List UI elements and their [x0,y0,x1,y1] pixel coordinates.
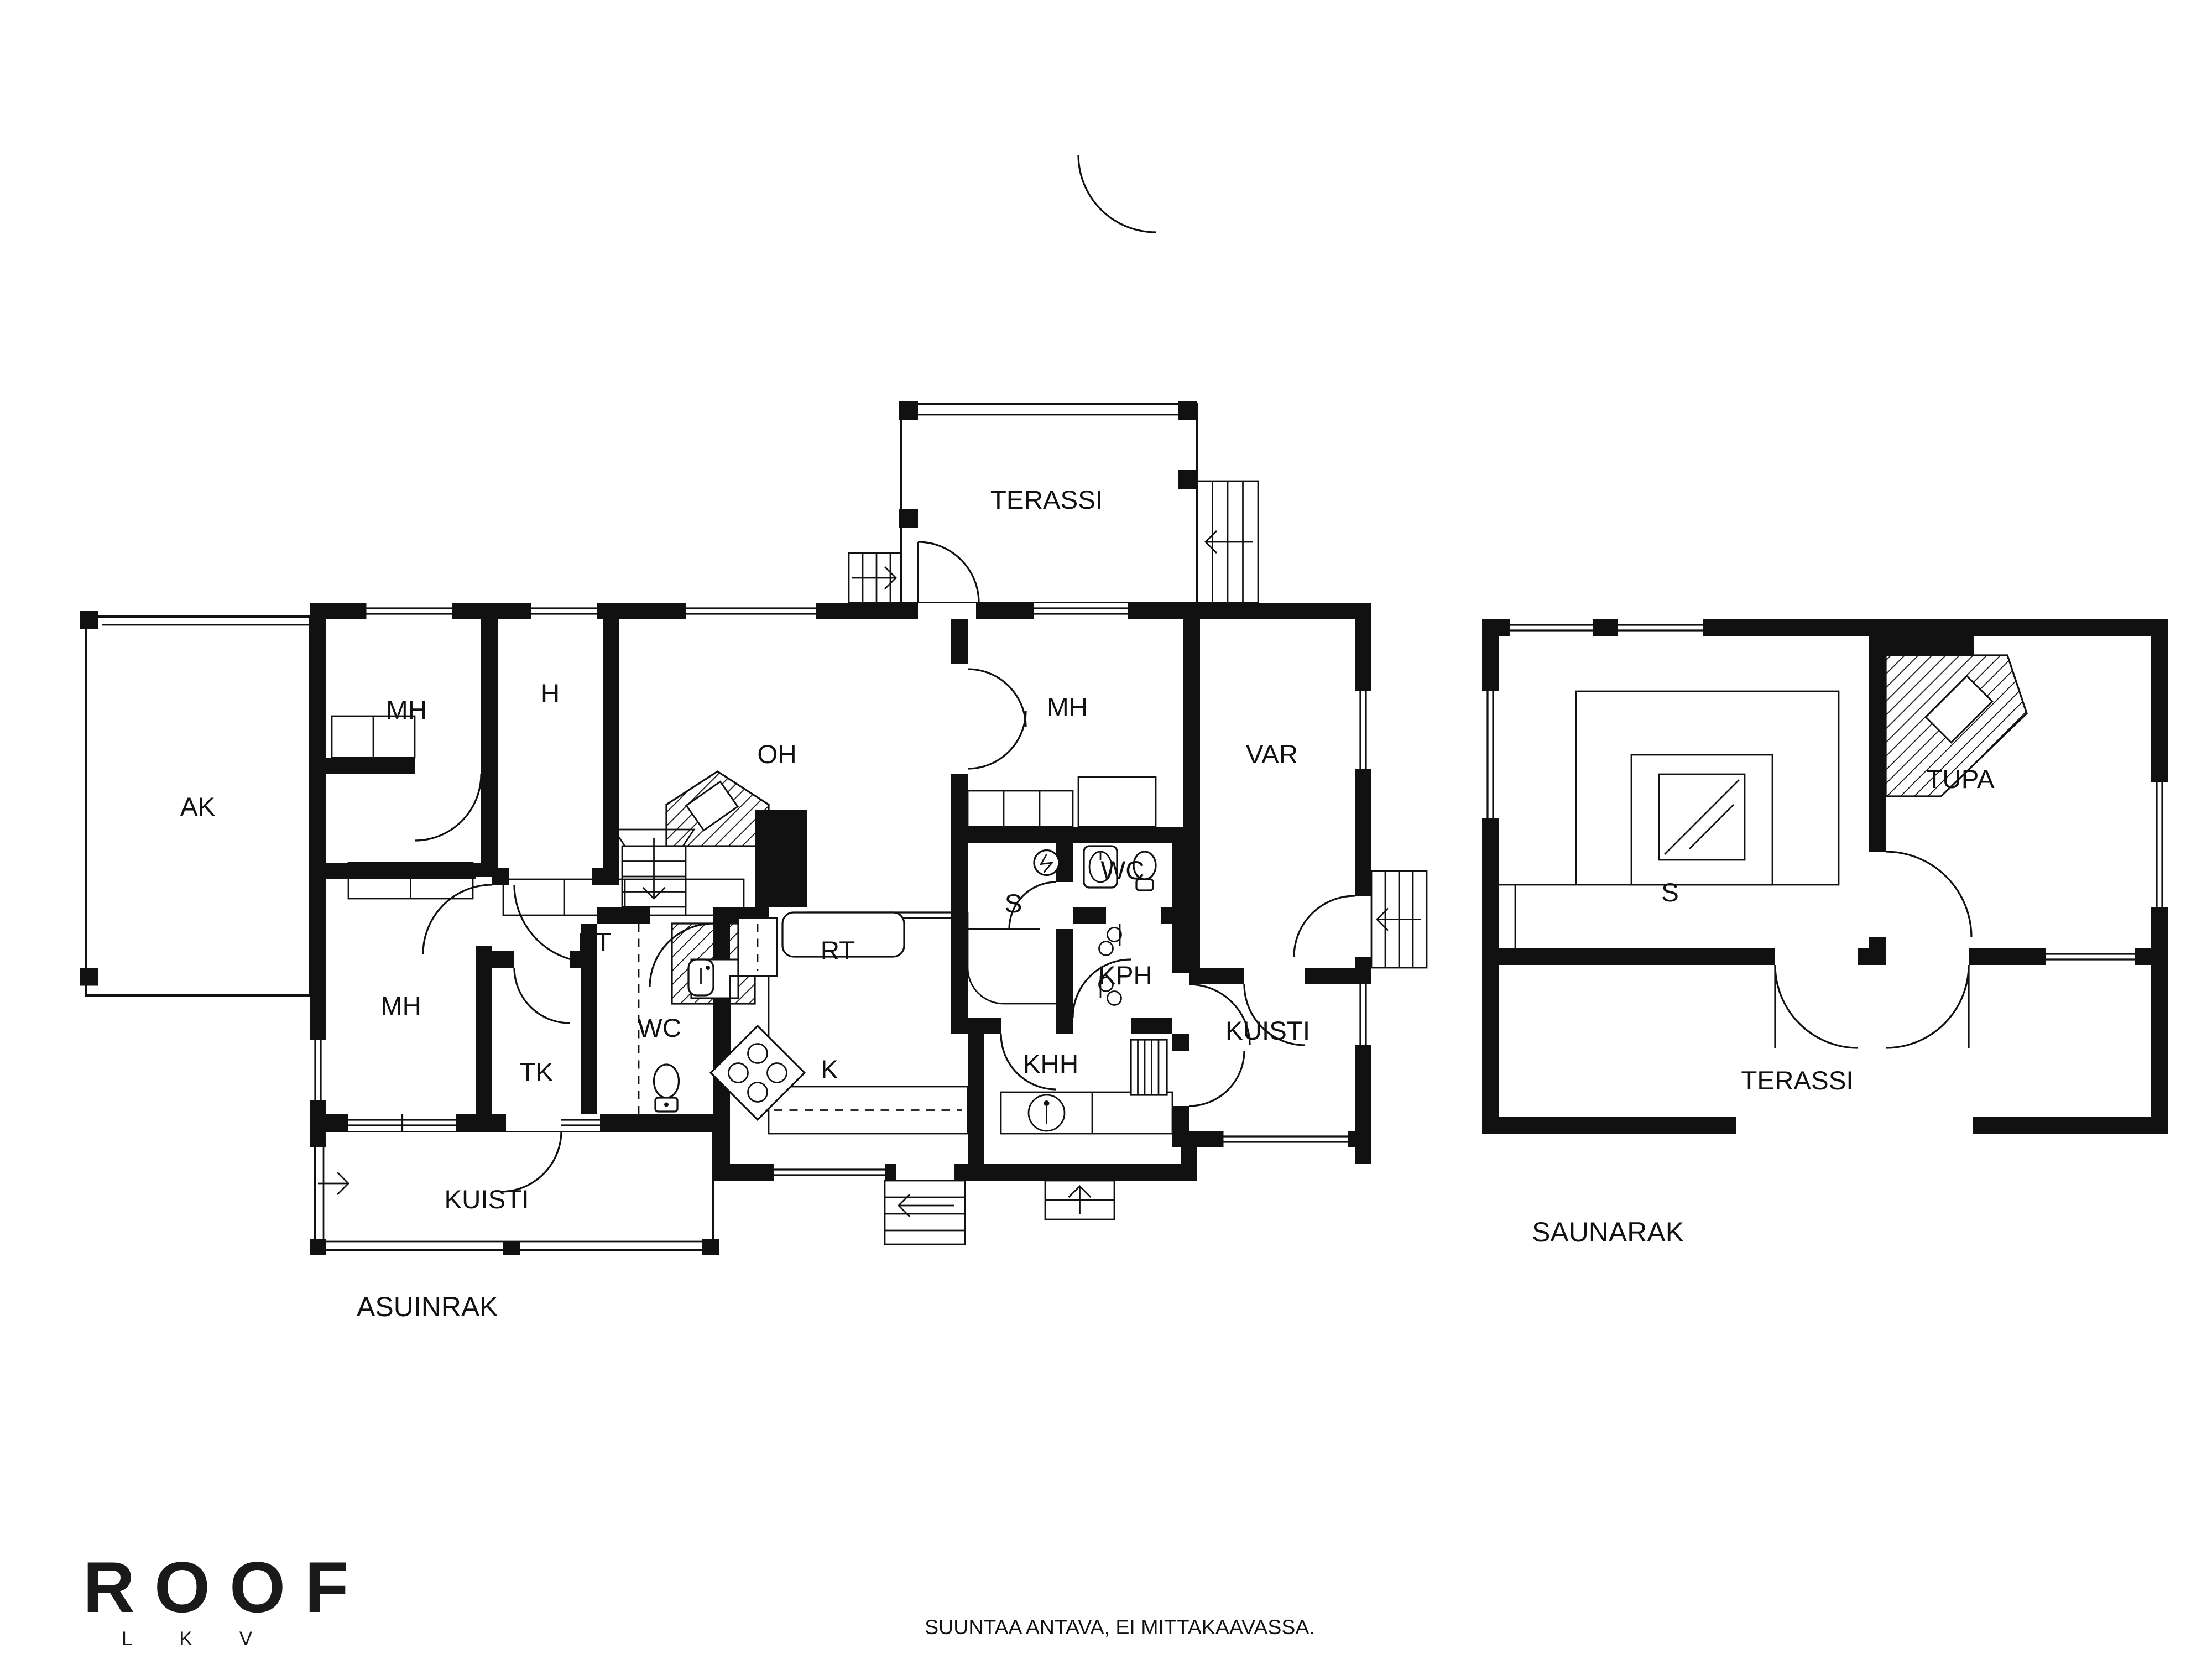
sauna-building: TUPA S TERASSI SAUNARAK [1482,619,2168,1248]
room-label-sauna-terassi: TERASSI [1741,1066,1853,1095]
room-label-tupa: TUPA [1926,765,1994,794]
room-label-kuisti-front: KUISTI [444,1185,529,1214]
window [1224,1131,1348,1147]
window [367,603,452,619]
stairs-kitchen [885,1181,965,1244]
room-label-tk: TK [520,1058,554,1087]
room-label-oh: OH [757,740,796,769]
room-label-k: K [821,1055,838,1084]
footer: ROOF LKV SUUNTAA ANTAVA, EI MITTAKAAVASS… [83,1547,1315,1650]
electric-panel-icon [1034,851,1059,875]
room-label-kph: KPH [1098,961,1152,990]
window [2151,782,2168,907]
window [774,1164,885,1181]
room-label-mh-bottom: MH [380,992,421,1021]
window [2046,948,2135,965]
sauna-windows [1482,619,2168,965]
room-label-mh-top-right: MH [1047,693,1088,722]
sauna-interior-walls [1482,636,2168,965]
main-building: TERASSI AK MH H OH MH VAR S WC KPH ET RT… [80,155,1427,1322]
washing-machine-icon [1029,1095,1065,1131]
window [1355,691,1371,769]
sauna-stove-icon [1659,774,1745,860]
room-label-rt: RT [821,936,855,966]
window [348,1114,456,1131]
sauna-outer-walls [1482,619,2168,1134]
brand-logo-letters: LKV [122,1628,299,1650]
room-label-s: S [1005,889,1022,919]
window [1355,984,1371,1045]
sauna-bench [1499,691,1839,948]
building-label-saunarak: SAUNARAK [1532,1217,1684,1248]
stairs-right [1371,871,1427,968]
toilet-icon [654,1065,679,1112]
sink-icon [688,959,713,995]
stairs-small [1045,1181,1114,1219]
disclaimer-text: SUUNTAA ANTAVA, EI MITTAKAAVASSA. [925,1615,1315,1639]
room-label-wc-small: WC [1100,856,1144,885]
window [310,1040,326,1100]
room-label-terassi: TERASSI [990,486,1103,515]
room-label-wc-bottom: WC [638,1014,681,1043]
room-label-et: ET [578,928,612,957]
door-arcs [415,542,1355,1192]
window [1482,691,1499,818]
shower-tap-icon [1099,924,1121,956]
window [686,603,816,619]
room-label-khh: KHH [1023,1050,1078,1079]
window [531,603,597,619]
floorplan-canvas: TERASSI AK MH H OH MH VAR S WC KPH ET RT… [0,0,2212,1659]
terrace-stairs-right [1197,481,1258,603]
room-label-h: H [541,679,560,708]
outer-walls [310,603,1371,1181]
window [1510,619,1593,636]
radiator-icon [1131,1040,1167,1095]
room-label-mh-top-left: MH [386,696,427,725]
room-label-sauna-s: S [1661,878,1679,907]
windows [310,603,1371,1181]
room-label-ak: AK [180,792,216,822]
window [1034,603,1128,619]
floorplan-page: TERASSI AK MH H OH MH VAR S WC KPH ET RT… [0,0,2212,1659]
window [1618,619,1703,636]
room-label-kuisti-right: KUISTI [1225,1016,1310,1046]
room-label-var: VAR [1246,740,1298,769]
building-label-asuinrak: ASUINRAK [357,1291,498,1322]
brand-logo: ROOF [83,1547,368,1627]
terrace-stairs-left [849,553,901,603]
